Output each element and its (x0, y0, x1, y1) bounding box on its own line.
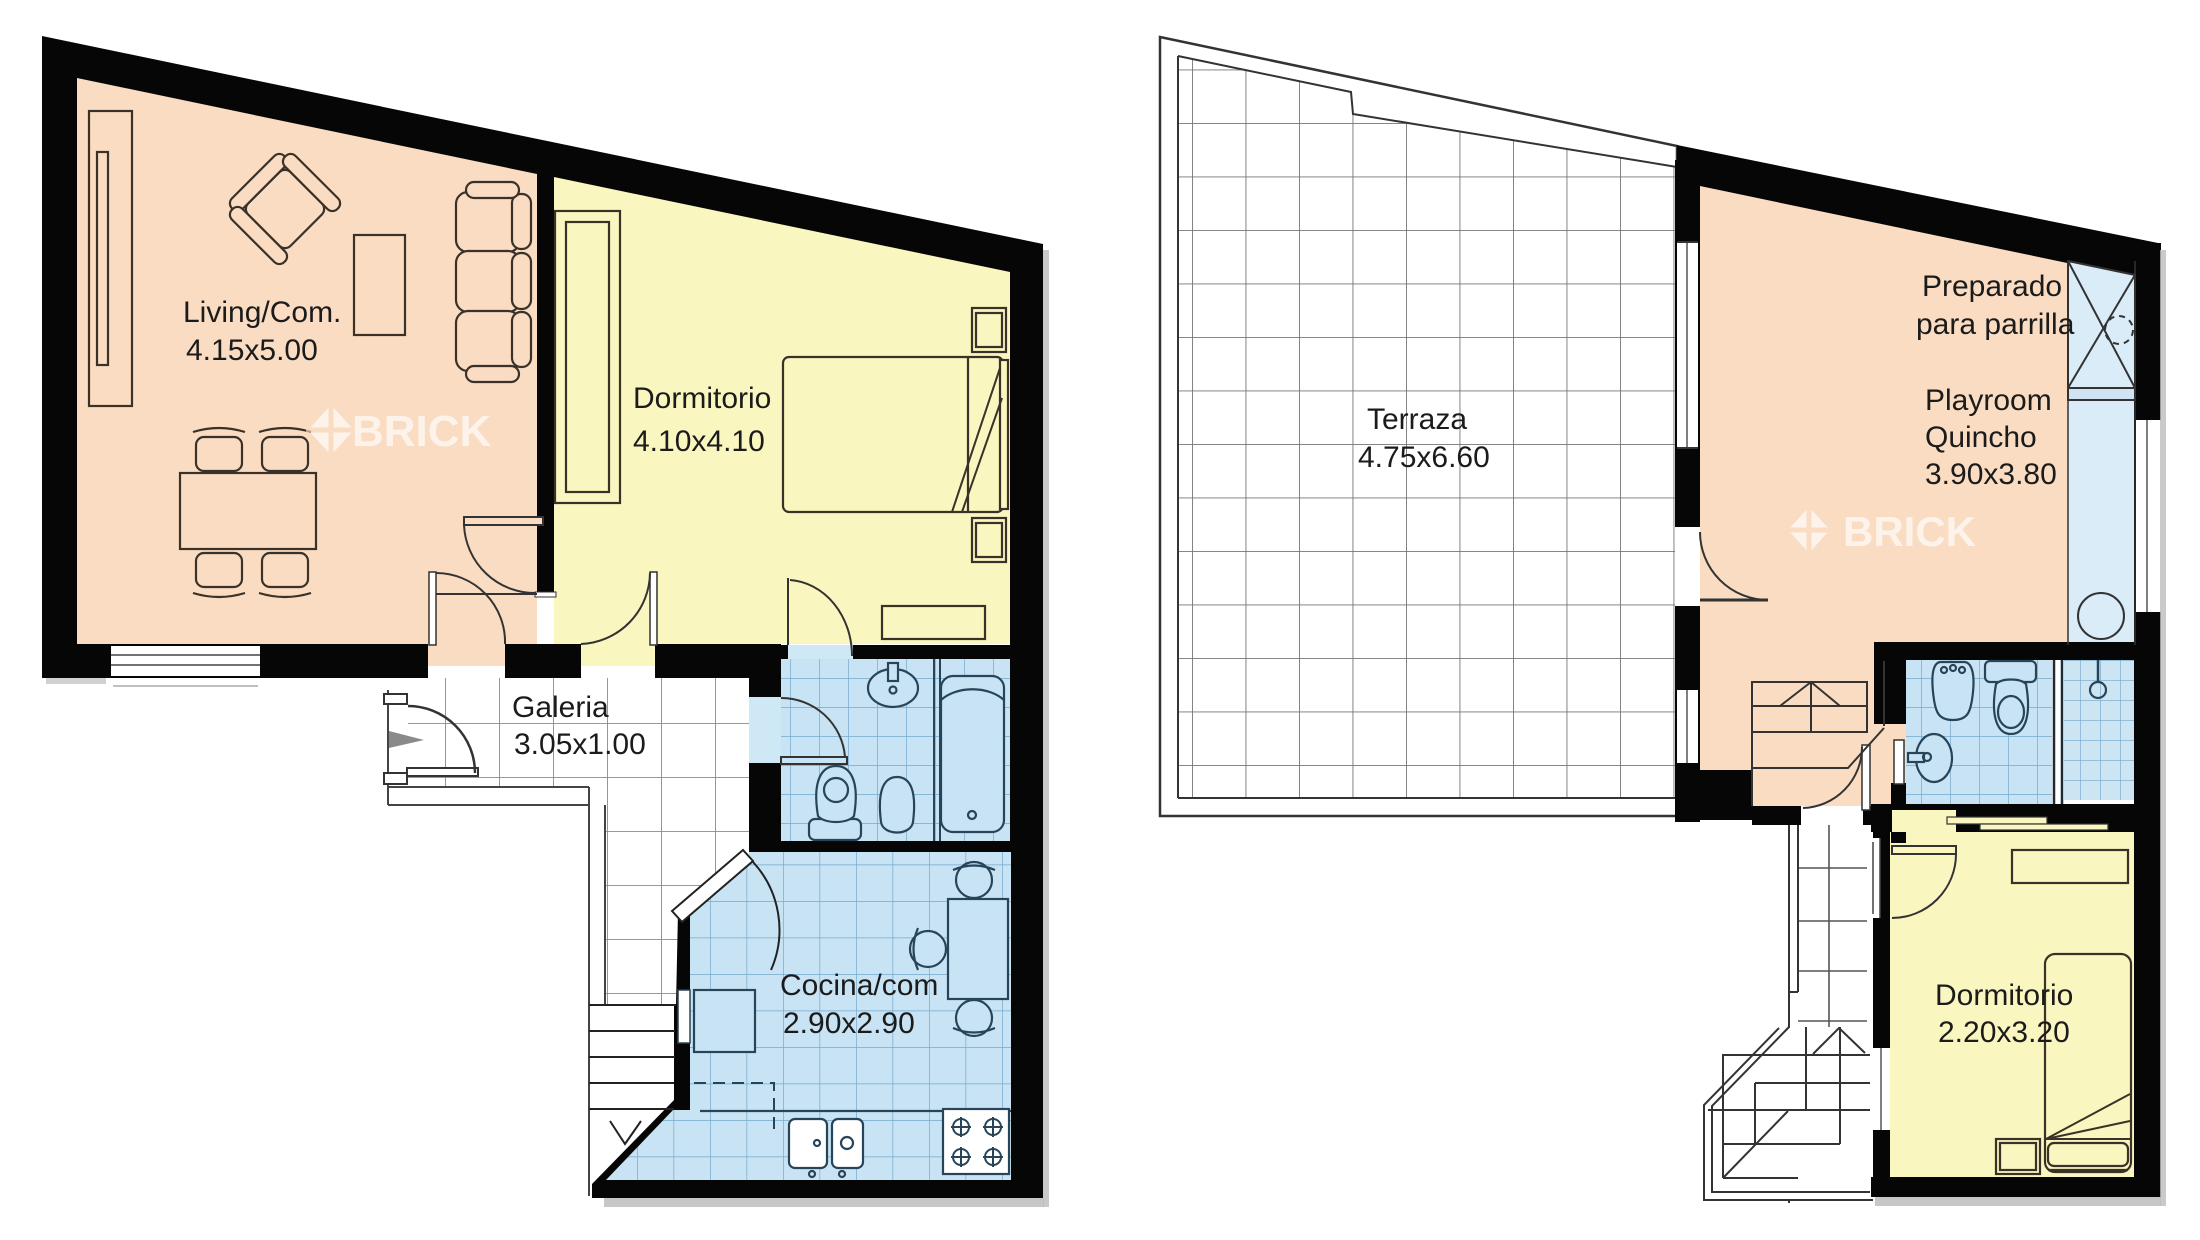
svg-text:Terraza: Terraza (1367, 403, 1467, 436)
svg-text:BRICK: BRICK (1843, 508, 1976, 555)
svg-text:Quincho: Quincho (1925, 421, 2037, 454)
svg-text:Dormitorio: Dormitorio (633, 382, 771, 415)
svg-text:Living/Com.: Living/Com. (183, 296, 341, 329)
svg-text:Cocina/com: Cocina/com (780, 969, 938, 1002)
svg-text:3.05x1.00: 3.05x1.00 (514, 728, 646, 761)
svg-text:BRICK: BRICK (352, 407, 492, 456)
svg-text:Dormitorio: Dormitorio (1935, 979, 2073, 1012)
svg-text:2.20x3.20: 2.20x3.20 (1938, 1016, 2070, 1049)
svg-text:Galeria: Galeria (512, 691, 609, 724)
svg-text:4.75x6.60: 4.75x6.60 (1358, 441, 1490, 474)
svg-text:2.90x2.90: 2.90x2.90 (783, 1007, 915, 1040)
svg-text:Playroom: Playroom (1925, 384, 2052, 417)
svg-text:Preparado: Preparado (1922, 270, 2062, 303)
svg-text:para parrilla: para parrilla (1916, 308, 2075, 341)
svg-text:3.90x3.80: 3.90x3.80 (1925, 458, 2057, 491)
svg-text:4.10x4.10: 4.10x4.10 (633, 425, 765, 458)
svg-text:4.15x5.00: 4.15x5.00 (186, 334, 318, 367)
